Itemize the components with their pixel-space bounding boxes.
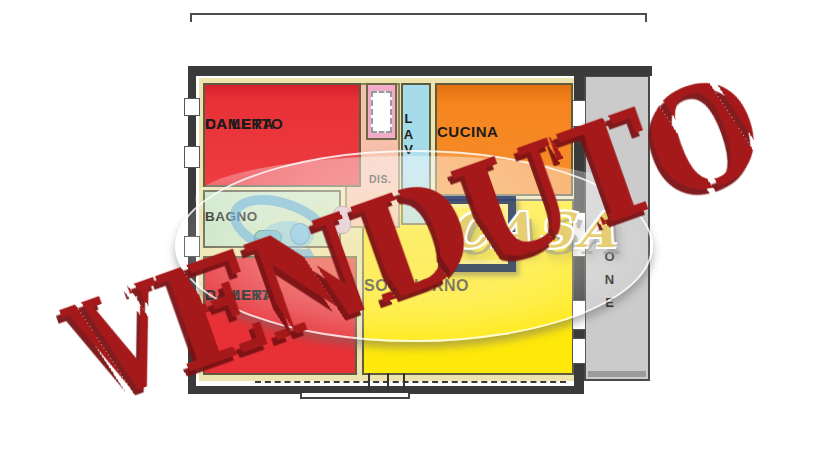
upper-boundary-line: [190, 13, 647, 15]
bedroom-top-label-line2: DA LETTO: [205, 113, 283, 135]
window-right-3: [572, 338, 586, 364]
wardrobe-dashed-outline: [371, 91, 392, 133]
bottom-door-frame-3: [403, 373, 405, 392]
bottom-entry-step: [300, 393, 410, 399]
upper-boundary-tick-left: [190, 13, 192, 22]
floorplan-page: SOGGIORNO DIS. LAV CUCINA CAMERA DA LETT…: [0, 0, 830, 459]
window-left-2: [184, 146, 200, 168]
balcony-edge-shading: [588, 371, 646, 377]
bottom-door-frame-1: [368, 373, 370, 392]
upper-boundary-tick-right: [645, 13, 647, 22]
bottom-door-frame-2: [387, 373, 389, 392]
window-left-1: [184, 98, 200, 116]
bottom-window-dashed-line: [255, 381, 566, 383]
